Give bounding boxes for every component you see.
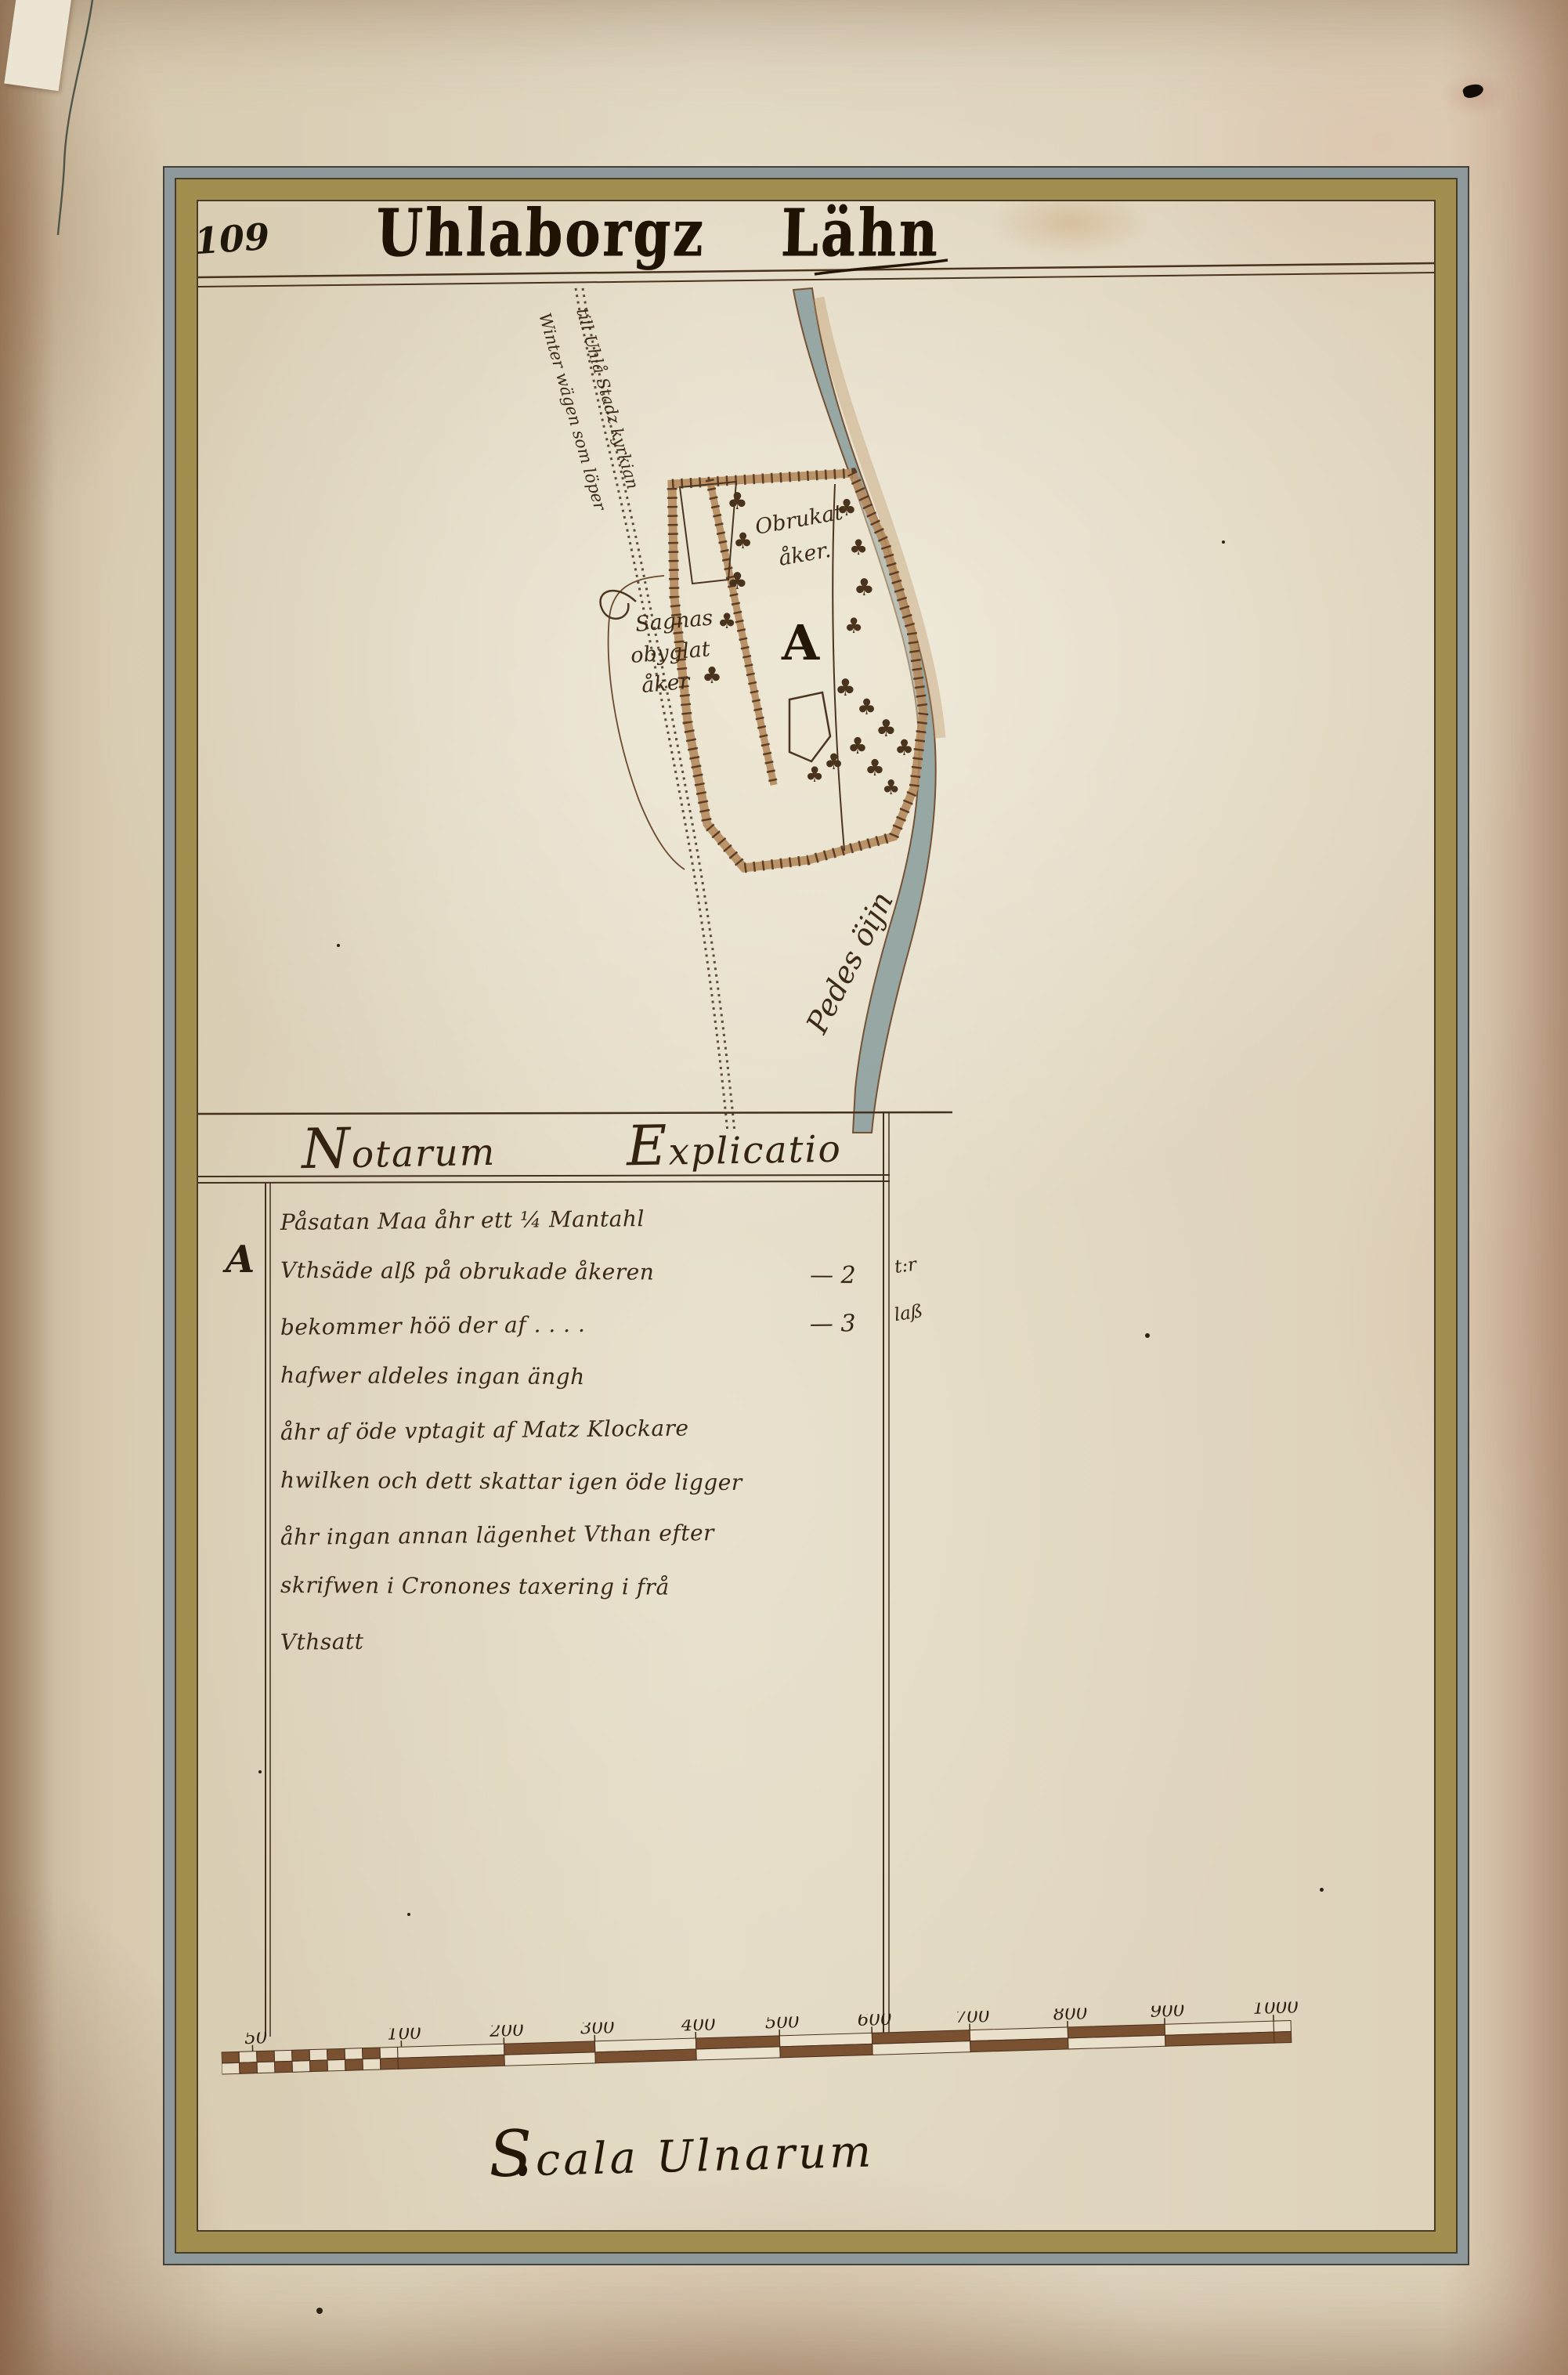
notarum-paragraph: Påsatan Maa åhr ett ¼ Mantahl Vthsäde al… [280,1206,876,1679]
scale-tick-label: 1000 [1252,2001,1299,2019]
measure-value: — 2 [810,1262,856,1289]
notarum-line: bekommer höö der af . . . . — 3 laß [280,1308,876,1367]
notarum-line: hafwer aldeles ingan ängh [280,1362,876,1418]
hair-fiber [58,0,92,235]
notarum-line: Vthsäde alß på obrukade åkeren — 2 t:r [280,1257,876,1313]
scanned-historical-map-page: { "page": { "folio_number": "109", "titl… [0,0,1568,2375]
notarum-line-text: hafwer aldeles ingan ängh [280,1362,585,1390]
notarum-line-text: Vthsatt [280,1629,364,1655]
notarum-line: åhr af öde vptagit af Matz Klockare [280,1413,876,1472]
notarum-line-text: Vthsäde alß på obrukade åkeren [280,1257,654,1285]
notarum-line-text: åhr ingan annan lägenhet Vthan efter [280,1520,714,1550]
explicatio-header: Explicatio [626,1111,842,1179]
measure-unit: laß [893,1301,924,1325]
notarum-line: hwilken och dett skattar igen öde ligger [280,1467,876,1523]
page-title: Uhlaborgz Lähn [266,195,1051,272]
notarum-line-text: bekommer höö der af . . . . [280,1311,586,1340]
measure-value: — 3 [810,1310,856,1338]
notarum-line-text: skrifwen i Cronones taxering i frå [280,1572,670,1600]
notarum-line: skrifwen i Cronones taxering i frå [280,1572,876,1628]
notarum-header: Notarum [301,1114,497,1181]
notarum-line-text: åhr af öde vptagit af Matz Klockare [280,1415,689,1445]
notarum-row-letter: A [226,1238,255,1281]
notarum-line-text: hwilken och dett skattar igen öde ligger [280,1467,742,1495]
notarum-line-text: Påsatan Maa åhr ett ¼ Mantahl [280,1206,645,1235]
folio-number: 109 [193,215,271,263]
measure-unit: t:r [894,1254,918,1278]
notarum-line: Påsatan Maa åhr ett ¼ Mantahl [280,1203,876,1262]
notarum-line: åhr ingan annan lägenhet Vthan efter [280,1518,876,1577]
notarum-line: Vthsatt [280,1623,876,1682]
scale-caption: Scala Ulnarum [406,2106,956,2194]
